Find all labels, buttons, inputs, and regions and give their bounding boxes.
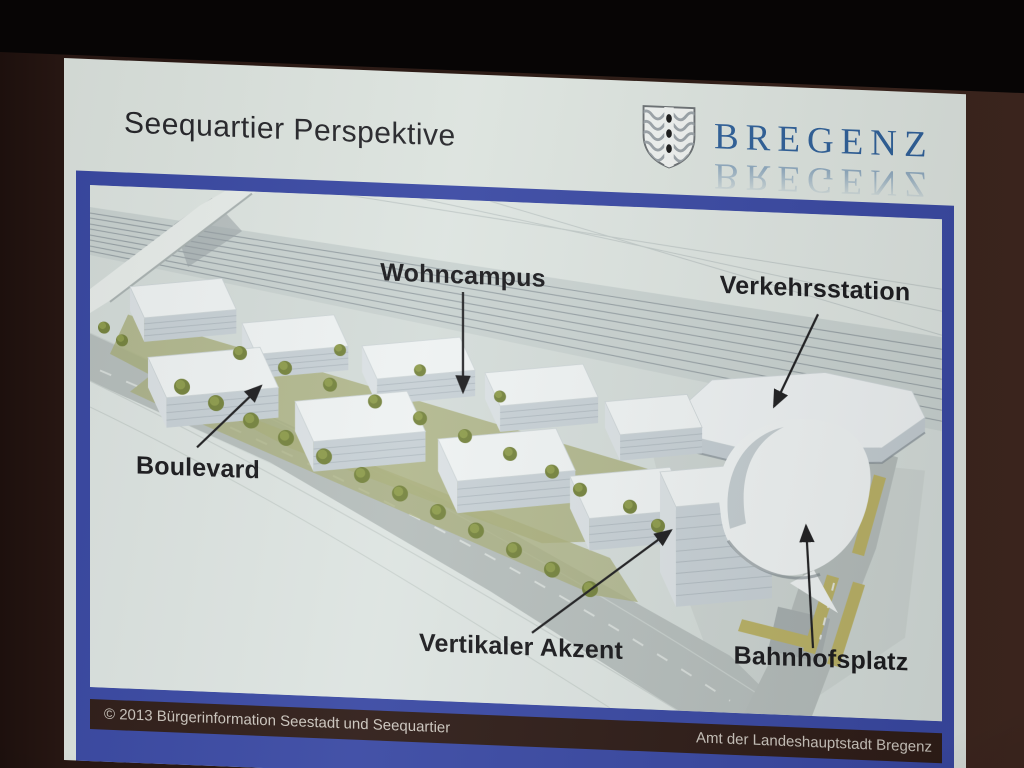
bregenz-logo: BREGENZ BREGENZ <box>640 103 934 203</box>
projected-slide-photo: Seequartier Perspektive <box>0 0 1024 768</box>
label-boulevard: Boulevard <box>136 451 260 485</box>
bregenz-wordmark-reflection: BREGENZ <box>714 157 934 203</box>
bregenz-crest-icon <box>640 103 698 176</box>
presentation-slide: Seequartier Perspektive <box>64 58 966 768</box>
page-title: Seequartier Perspektive <box>124 106 456 153</box>
bregenz-wordmark: BREGENZ <box>714 118 934 164</box>
site-perspective-rendering: Wohncampus Verkehrsstation Boulevard Ver… <box>90 185 942 721</box>
